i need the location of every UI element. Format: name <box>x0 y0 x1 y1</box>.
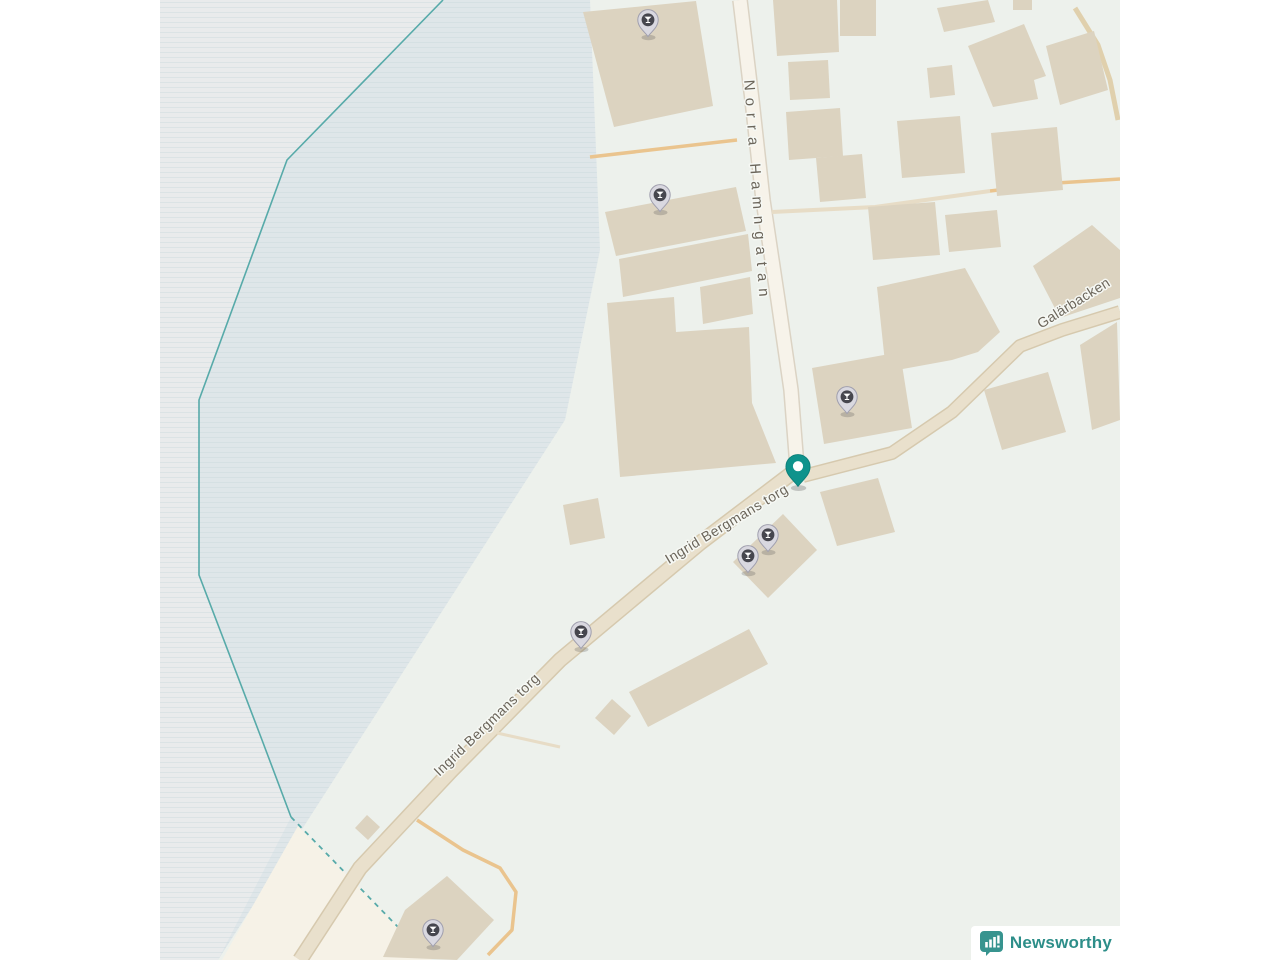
building <box>897 116 965 178</box>
map-svg[interactable]: Norra HamngatanIngrid Bergmans torgIngri… <box>160 0 1120 960</box>
newsworthy-logo-icon <box>980 931 1003 956</box>
building <box>788 60 830 100</box>
highlight-pin-dot <box>793 461 803 471</box>
map-canvas[interactable]: Norra HamngatanIngrid Bergmans torgIngri… <box>160 0 1120 960</box>
building <box>1013 0 1032 10</box>
page: Norra HamngatanIngrid Bergmans torgIngri… <box>0 0 1280 960</box>
building <box>786 108 843 160</box>
building <box>812 352 912 444</box>
building <box>868 202 940 260</box>
building <box>816 154 866 202</box>
newsworthy-attribution[interactable]: Newsworthy <box>971 926 1120 960</box>
building <box>840 0 876 36</box>
newsworthy-logo-text: Newsworthy <box>1010 933 1112 953</box>
building <box>773 0 839 56</box>
building <box>945 210 1001 252</box>
building <box>927 65 955 98</box>
building <box>563 498 605 545</box>
building <box>991 127 1063 196</box>
